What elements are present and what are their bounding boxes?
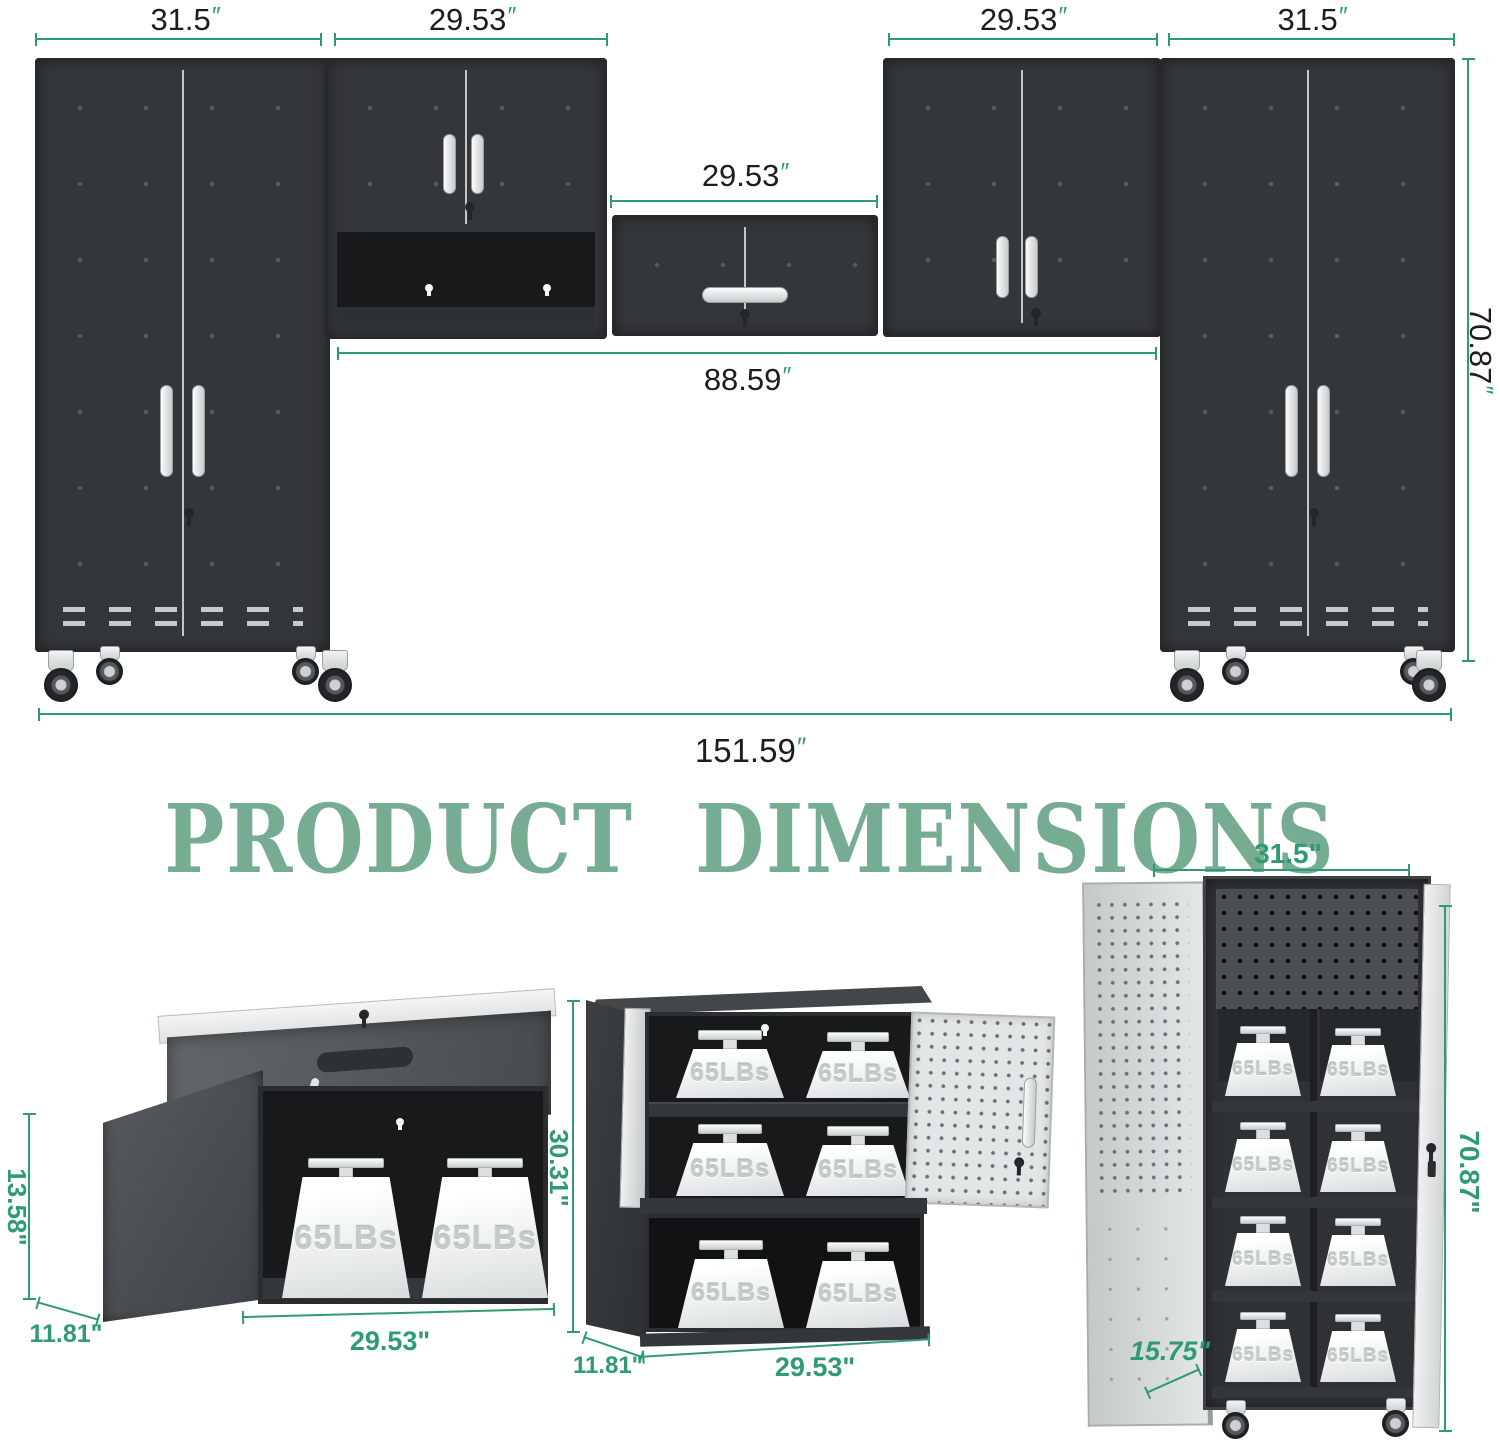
keyhole-lock-icon bbox=[1014, 1157, 1024, 1167]
dim-line-total-width bbox=[38, 713, 1452, 715]
door-vent-slots bbox=[63, 621, 303, 626]
caster-wheel bbox=[1222, 646, 1249, 685]
weight-body: 65LBs bbox=[1225, 1329, 1301, 1382]
weight-handle bbox=[698, 1030, 763, 1040]
flip-cabinet-side-panel bbox=[103, 1070, 263, 1322]
lid-handle-recess bbox=[317, 1046, 413, 1073]
dim-value: 29.53 bbox=[980, 2, 1058, 37]
weight-label: 65LBs bbox=[690, 1059, 770, 1088]
weight-65lbs: 65LBs bbox=[1225, 1216, 1301, 1286]
weight-label: 65LBs bbox=[818, 1156, 898, 1185]
caster-wheel-tire bbox=[318, 668, 352, 702]
weight-65lbs: 65LBs bbox=[1320, 1124, 1396, 1192]
dim-line-right-tall-width bbox=[1168, 38, 1455, 40]
door-handle bbox=[471, 134, 484, 194]
weight-body: 65LBs bbox=[676, 1049, 784, 1098]
caster-wheel bbox=[44, 650, 78, 702]
tall-cabinet-width-line bbox=[1153, 869, 1410, 871]
weight-stem bbox=[1256, 1130, 1270, 1139]
weight-label: 65LBs bbox=[690, 1155, 770, 1184]
weight-65lbs: 65LBs bbox=[676, 1030, 784, 1098]
mounting-hole bbox=[543, 284, 551, 292]
weight-handle bbox=[827, 1032, 889, 1042]
weight-label: 65LBs bbox=[1327, 1346, 1389, 1368]
weight-body: 65LBs bbox=[1320, 1045, 1396, 1096]
weight-stem bbox=[851, 1136, 865, 1145]
weight-label: 65LBs bbox=[1327, 1060, 1389, 1082]
dim-value: 88.59 bbox=[704, 362, 782, 397]
dim-value: 31.5 bbox=[1277, 2, 1337, 37]
weight-65lbs: 65LBs bbox=[1225, 1122, 1301, 1192]
weight-handle bbox=[1240, 1122, 1286, 1130]
dim-line-left-tall-width bbox=[35, 38, 322, 40]
stacked-cabinet-right-door-open bbox=[905, 1012, 1056, 1209]
weight-label: 65LBs bbox=[1232, 1059, 1294, 1081]
door-handle bbox=[1025, 236, 1038, 298]
dim-value: 29.53 bbox=[702, 158, 780, 193]
dim-unit: ″ bbox=[1338, 4, 1347, 31]
weight-65lbs: 65LBs bbox=[1320, 1028, 1396, 1096]
weight-65lbs: 65LBs bbox=[1320, 1314, 1396, 1382]
weight-body: 65LBs bbox=[676, 1143, 784, 1196]
dim-line-span-width bbox=[337, 352, 1157, 354]
stacked-cabinet-width-label: 29.53" bbox=[740, 1352, 890, 1383]
dim-unit: ″ bbox=[1057, 4, 1066, 31]
weight-handle bbox=[698, 1124, 763, 1134]
dim-unit: ″ bbox=[1469, 384, 1496, 393]
weight-body: 65LBs bbox=[806, 1261, 910, 1328]
weight-label: 65LBs bbox=[1232, 1249, 1294, 1271]
keyhole-lock-icon bbox=[1031, 308, 1041, 318]
caster-wheel bbox=[1170, 650, 1204, 702]
tall-cabinet-width-label: 31.5" bbox=[1228, 838, 1348, 870]
door-pegboard bbox=[1092, 898, 1191, 1199]
door-hole-panel bbox=[1096, 1214, 1194, 1397]
caster-wheel-tire bbox=[1412, 668, 1446, 702]
weight-stem bbox=[851, 1042, 865, 1051]
weight-body: 65LBs bbox=[422, 1177, 548, 1298]
wall-cabinet-1 bbox=[325, 58, 607, 339]
right-tall-cabinet bbox=[1160, 58, 1455, 652]
door-handle bbox=[443, 134, 456, 194]
dim-value: 31.5 bbox=[150, 2, 210, 37]
tall-cabinet-height-line bbox=[1444, 905, 1446, 1432]
door-handle bbox=[1285, 385, 1298, 477]
dim-label-middle-cab-width: 29.53″ bbox=[665, 158, 825, 194]
door-handle bbox=[1022, 1078, 1037, 1148]
wall-cabinet-2 bbox=[883, 58, 1161, 337]
dim-unit: ″ bbox=[779, 160, 788, 187]
cabinet-shelf bbox=[1212, 1387, 1422, 1398]
weight-65lbs: 65LBs bbox=[1225, 1026, 1301, 1096]
left-tall-cabinet-doors bbox=[47, 70, 318, 636]
cabinet-shelf bbox=[1212, 1291, 1422, 1302]
wall-cabinet-1-doors bbox=[337, 70, 595, 224]
dim-label-total-height: 70.87″ bbox=[1462, 270, 1498, 430]
weight-label: 65LBs bbox=[1232, 1155, 1294, 1177]
weight-stem bbox=[478, 1168, 492, 1177]
weight-stem bbox=[1351, 1322, 1365, 1331]
keyhole-lock-icon bbox=[184, 508, 194, 518]
weight-label: 65LBs bbox=[818, 1060, 898, 1089]
weight-65lbs: 65LBs bbox=[678, 1240, 784, 1328]
weight-stem bbox=[1351, 1036, 1365, 1045]
weight-handle bbox=[1335, 1218, 1381, 1226]
weight-65lbs: 65LBs bbox=[1320, 1218, 1396, 1286]
weight-body: 65LBs bbox=[1320, 1141, 1396, 1192]
dim-unit: ″ bbox=[781, 364, 790, 391]
flip-cabinet-height-label: 13.58" bbox=[0, 1152, 32, 1262]
weight-body: 65LBs bbox=[1225, 1139, 1301, 1192]
door-handle bbox=[996, 236, 1009, 298]
door-handle bbox=[192, 385, 205, 477]
middle-wall-cabinet bbox=[612, 215, 878, 336]
weight-label: 65LBs bbox=[433, 1219, 537, 1257]
weight-body: 65LBs bbox=[282, 1177, 410, 1298]
weight-handle bbox=[1335, 1314, 1381, 1322]
caster-wheel bbox=[318, 650, 352, 702]
door-vent-slots bbox=[1188, 607, 1428, 612]
page-title: PRODUCT DIMENSIONS bbox=[120, 790, 1380, 890]
product-dimensions-infographic: 31.5″ 29.53″ 29.53″ 31.5″ 29.53″ bbox=[0, 0, 1500, 1448]
weight-handle bbox=[827, 1126, 889, 1136]
weight-handle bbox=[1240, 1312, 1286, 1320]
left-tall-cabinet bbox=[35, 58, 330, 652]
weight-65lbs: 65LBs bbox=[806, 1126, 910, 1196]
door-vent-slots bbox=[63, 607, 303, 612]
hanging-keys-icon bbox=[1428, 1161, 1436, 1177]
weight-label: 65LBs bbox=[1232, 1345, 1294, 1367]
dim-label-wall-cab2-width: 29.53″ bbox=[943, 2, 1103, 38]
stacked-cabinet-height-label: 30.31" bbox=[538, 1113, 574, 1223]
weight-65lbs: 65LBs bbox=[1225, 1312, 1301, 1382]
weight-65lbs: 65LBs bbox=[282, 1158, 410, 1298]
keyhole-lock-icon bbox=[1426, 1143, 1436, 1153]
weight-stem bbox=[851, 1252, 865, 1261]
caster-wheel-tire bbox=[96, 658, 123, 685]
weight-handle bbox=[1335, 1028, 1381, 1036]
weight-stem bbox=[1256, 1224, 1270, 1233]
mounting-hole bbox=[396, 1118, 404, 1126]
weight-stem bbox=[1351, 1132, 1365, 1141]
dim-label-wall-cab1-width: 29.53″ bbox=[392, 2, 552, 38]
caster-wheel bbox=[1222, 1400, 1249, 1439]
weight-handle bbox=[1335, 1124, 1381, 1132]
caster-wheel bbox=[96, 646, 123, 685]
tall-cabinet-depth-label: 15.75" bbox=[1120, 1336, 1220, 1367]
caster-wheel-tire bbox=[292, 658, 319, 685]
dim-label-span-width: 88.59″ bbox=[667, 362, 827, 398]
caster-wheel-tire bbox=[1382, 1410, 1409, 1437]
weight-body: 65LBs bbox=[678, 1259, 784, 1328]
dim-value: 70.87 bbox=[1463, 307, 1498, 385]
right-tall-cabinet-doors bbox=[1172, 70, 1443, 636]
weight-65lbs: 65LBs bbox=[676, 1124, 784, 1196]
weight-stem bbox=[1256, 1034, 1270, 1043]
weight-stem bbox=[339, 1168, 353, 1177]
door-handle bbox=[702, 287, 788, 303]
dim-label-total-width: 151.59″ bbox=[655, 732, 845, 770]
weight-body: 65LBs bbox=[1225, 1043, 1301, 1096]
keyhole-lock-icon bbox=[465, 202, 475, 212]
weight-label: 65LBs bbox=[818, 1280, 898, 1309]
weight-handle bbox=[1240, 1216, 1286, 1224]
dim-value: 151.59 bbox=[695, 732, 796, 769]
wall-cabinet-1-open-shelf bbox=[337, 232, 595, 327]
weight-body: 65LBs bbox=[1225, 1233, 1301, 1286]
caster-wheel bbox=[292, 646, 319, 685]
keyhole-lock-icon bbox=[740, 309, 750, 319]
weight-handle bbox=[308, 1158, 384, 1168]
cabinet-shelf bbox=[649, 1102, 918, 1117]
dim-unit: ″ bbox=[211, 4, 220, 31]
caster-wheel bbox=[1382, 1398, 1409, 1437]
dim-unit: ″ bbox=[796, 732, 805, 762]
caster-wheel-tire bbox=[44, 668, 78, 702]
weight-label: 65LBs bbox=[1327, 1156, 1389, 1178]
weight-stem bbox=[1256, 1320, 1270, 1329]
weight-label: 65LBs bbox=[1327, 1250, 1389, 1272]
caster-wheel-tire bbox=[1222, 658, 1249, 685]
flip-cabinet-width-label: 29.53" bbox=[300, 1326, 480, 1357]
weight-stem bbox=[724, 1250, 738, 1259]
mounting-hole bbox=[425, 284, 433, 292]
wall-cabinet-2-doors bbox=[895, 70, 1149, 323]
caster-wheel-tire bbox=[1222, 1412, 1249, 1439]
weight-65lbs: 65LBs bbox=[422, 1158, 548, 1298]
cabinet-shelf bbox=[1212, 1101, 1422, 1112]
flip-cabinet-depth-line bbox=[37, 1301, 99, 1321]
door-vent-slots bbox=[1188, 621, 1428, 626]
dim-value: 29.53 bbox=[429, 2, 507, 37]
dim-line-middle-cab-width bbox=[610, 200, 878, 202]
weight-handle bbox=[699, 1240, 762, 1250]
weight-body: 65LBs bbox=[806, 1145, 910, 1196]
weight-65lbs: 65LBs bbox=[806, 1242, 910, 1328]
flip-cabinet-width-line bbox=[242, 1308, 555, 1318]
door-handle bbox=[1317, 385, 1330, 477]
weight-label: 65LBs bbox=[691, 1279, 771, 1308]
weight-handle bbox=[447, 1158, 522, 1168]
weight-stem bbox=[723, 1040, 737, 1049]
weight-handle bbox=[1240, 1026, 1286, 1034]
weight-stem bbox=[723, 1134, 737, 1143]
flip-cabinet-depth-label: 11.81" bbox=[18, 1320, 114, 1349]
weight-label: 65LBs bbox=[294, 1219, 398, 1257]
cabinet-shelf bbox=[1212, 1197, 1422, 1208]
caster-wheel-tire bbox=[1170, 668, 1204, 702]
weight-stem bbox=[1351, 1226, 1365, 1235]
keyhole-lock-icon bbox=[1309, 508, 1319, 518]
caster-wheel bbox=[1412, 650, 1446, 702]
weight-65lbs: 65LBs bbox=[806, 1032, 910, 1098]
weight-handle bbox=[827, 1242, 889, 1252]
dim-line-wall-cab2-width bbox=[888, 38, 1158, 40]
tall-cabinet-height-label: 70.87" bbox=[1449, 1112, 1485, 1232]
dim-line-wall-cab1-width bbox=[334, 38, 608, 40]
interior-pegboard-back bbox=[1216, 889, 1418, 1009]
weight-body: 65LBs bbox=[806, 1051, 910, 1098]
door-handle bbox=[160, 385, 173, 477]
weight-body: 65LBs bbox=[1320, 1331, 1396, 1382]
dim-label-right-tall-width: 31.5″ bbox=[1232, 2, 1392, 38]
dim-label-left-tall-width: 31.5″ bbox=[105, 2, 265, 38]
stacked-cabinet-divider bbox=[640, 1198, 927, 1214]
dim-unit: ″ bbox=[506, 4, 515, 31]
weight-body: 65LBs bbox=[1320, 1235, 1396, 1286]
